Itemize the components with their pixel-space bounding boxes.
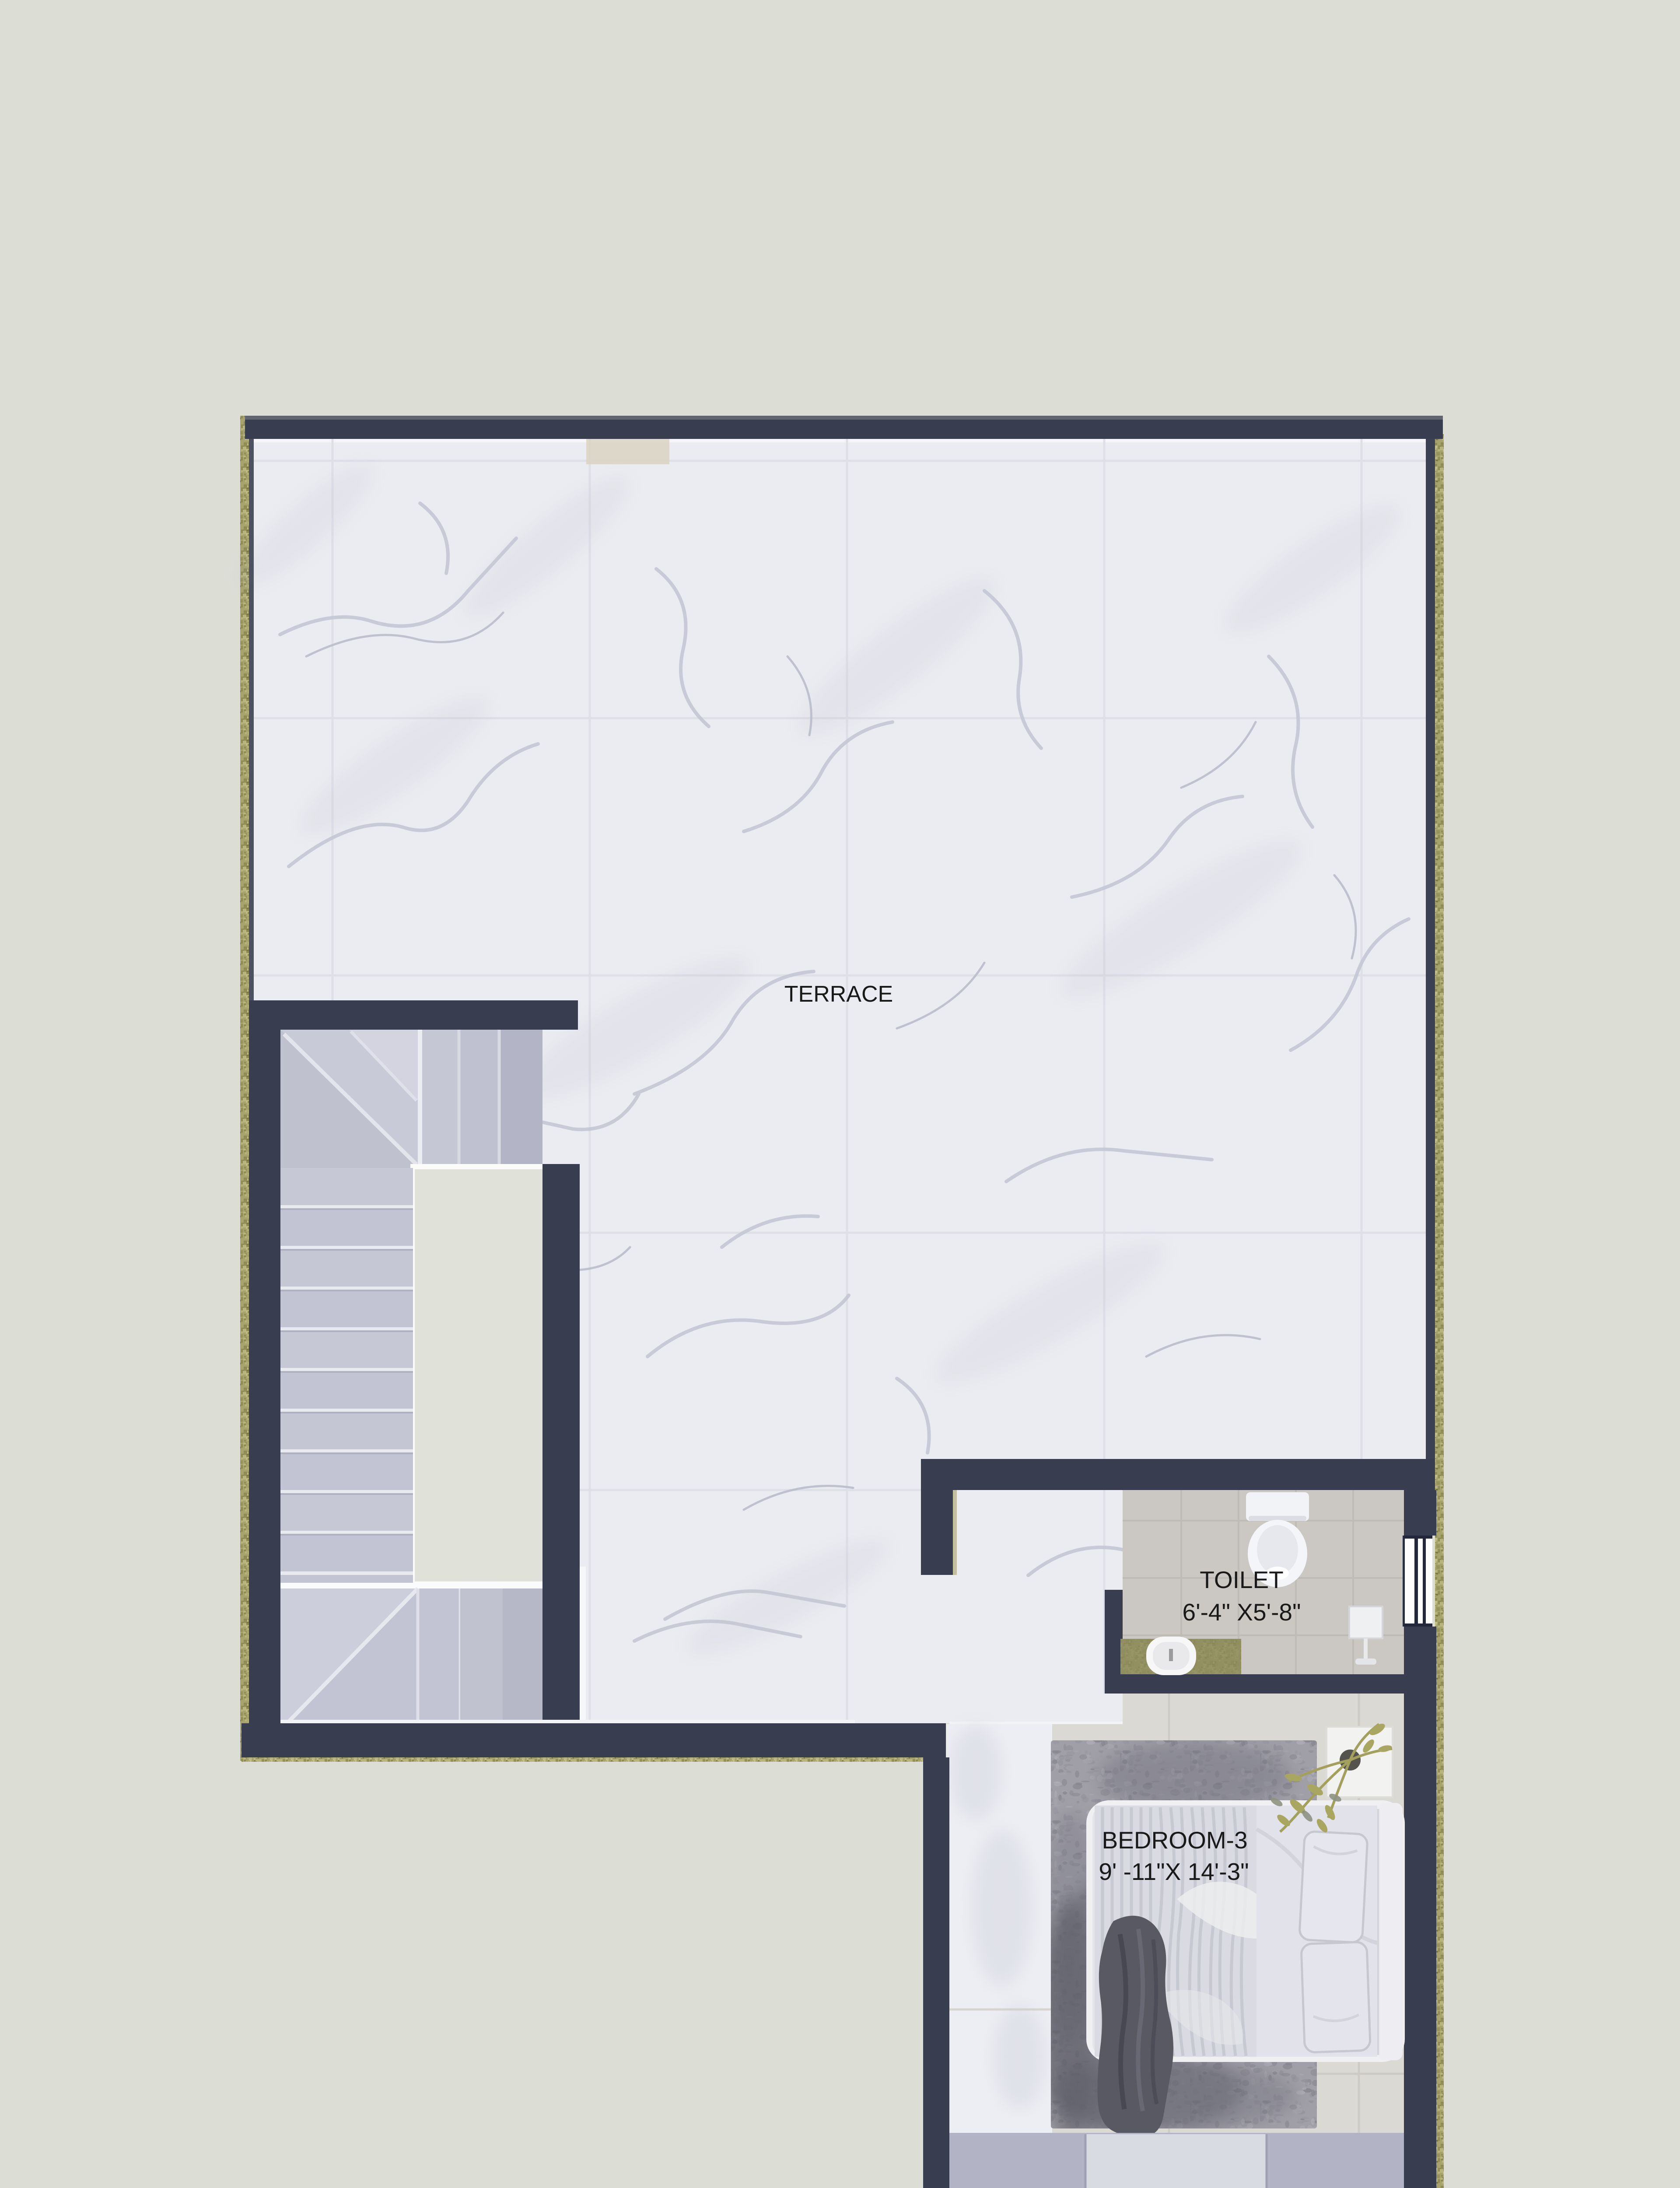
svg-text:BEDROOM-3: BEDROOM-3 [1102, 1827, 1247, 1854]
svg-text:6'-4" X5'-8": 6'-4" X5'-8" [1183, 1599, 1301, 1626]
svg-text:TERRACE: TERRACE [784, 982, 893, 1007]
svg-text:TOILET: TOILET [1200, 1566, 1284, 1593]
svg-text:9' -11"X 14'-3": 9' -11"X 14'-3" [1099, 1858, 1249, 1885]
